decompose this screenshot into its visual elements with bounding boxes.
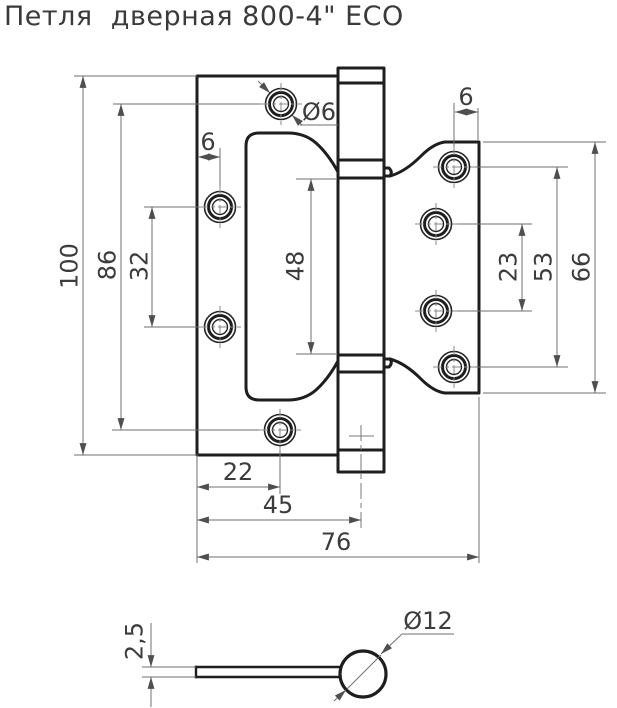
dim-label-66: 66 bbox=[567, 252, 595, 283]
dim-label-76: 76 bbox=[321, 528, 352, 556]
dim-label-48: 48 bbox=[281, 251, 309, 282]
dim-label-45: 45 bbox=[263, 491, 294, 519]
dim-pin-axis-offset: 45 bbox=[197, 491, 361, 520]
leaf-edge-profile bbox=[196, 667, 342, 677]
dim-plate-thickness: 2,5 bbox=[120, 622, 196, 707]
dim-label-100: 100 bbox=[55, 243, 83, 289]
front-view: 100 86 32 6 Ø6 bbox=[55, 68, 606, 563]
dim-label-86: 86 bbox=[93, 250, 121, 281]
hinge-barrel bbox=[338, 68, 384, 472]
dim-label-d6: Ø6 bbox=[302, 98, 336, 126]
dim-label-2-5: 2,5 bbox=[120, 622, 148, 660]
side-view: 2,5 Ø12 bbox=[120, 607, 454, 707]
dim-label-6-left: 6 bbox=[200, 128, 215, 156]
drawing-page: { "title": "Петля дверная 800-4\" ECO", … bbox=[0, 0, 617, 708]
dim-label-32: 32 bbox=[125, 251, 153, 282]
dim-label-53: 53 bbox=[529, 252, 557, 283]
dim-label-23: 23 bbox=[494, 252, 522, 283]
hinge-technical-drawing: 100 86 32 6 Ø6 bbox=[0, 0, 617, 708]
dim-label-22: 22 bbox=[223, 458, 254, 486]
dim-label-d12: Ø12 bbox=[403, 607, 452, 635]
barrel-section-circle bbox=[340, 651, 386, 697]
dim-label-6-right: 6 bbox=[458, 83, 473, 111]
